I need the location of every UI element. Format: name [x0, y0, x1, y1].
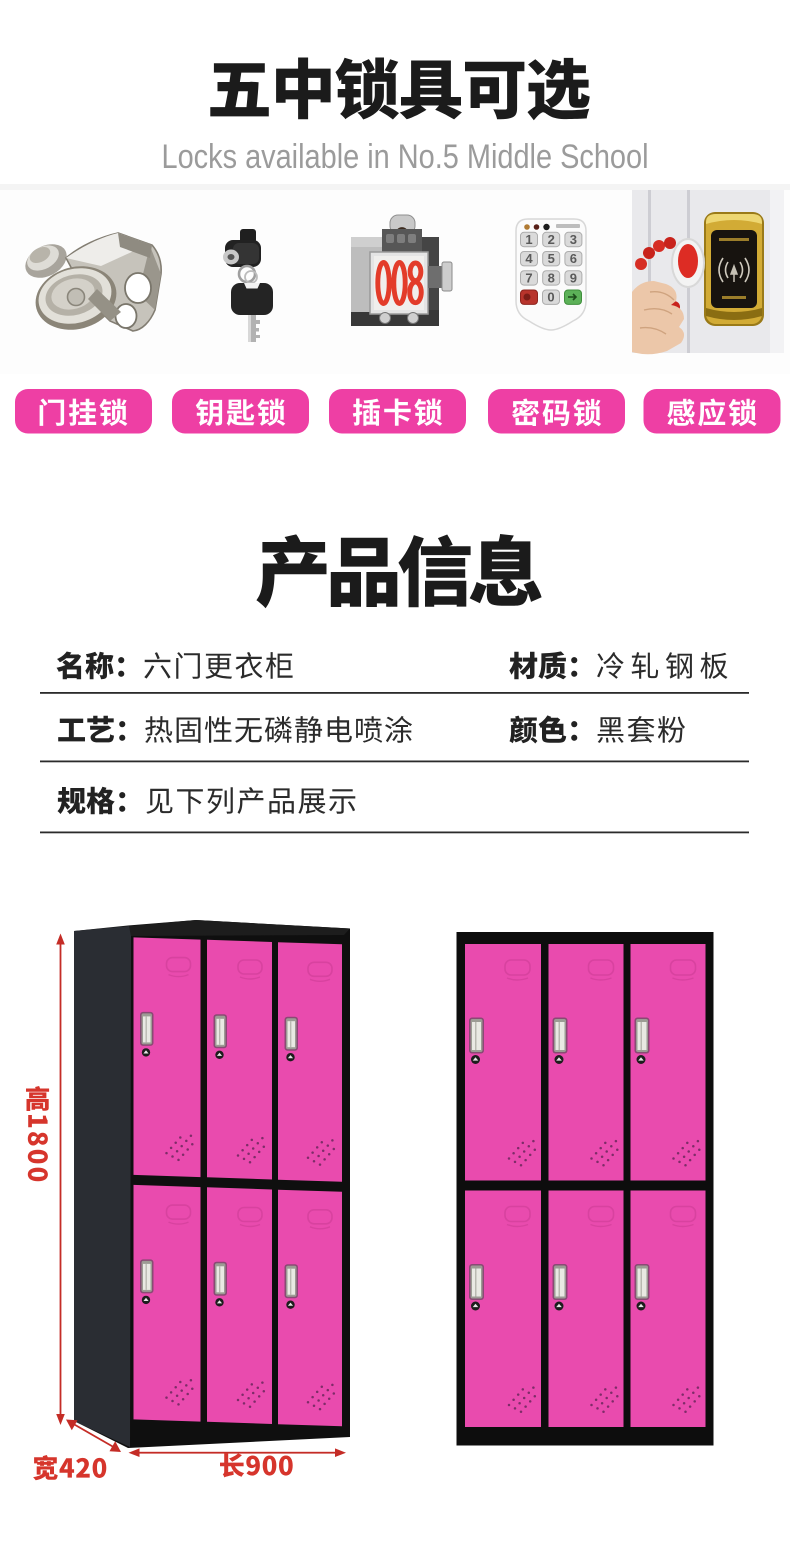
- svg-text:0: 0: [547, 290, 554, 305]
- svg-text:8: 8: [548, 270, 555, 285]
- svg-text:7: 7: [525, 270, 532, 285]
- svg-text:3: 3: [570, 232, 577, 247]
- svg-text:5: 5: [548, 251, 555, 266]
- svg-text:6: 6: [570, 251, 577, 266]
- svg-text:2: 2: [548, 232, 555, 247]
- svg-text:1: 1: [525, 232, 532, 247]
- svg-text:4: 4: [525, 251, 533, 266]
- svg-text:Locks available in No.5 Middle: Locks available in No.5 Middle School: [162, 138, 649, 176]
- svg-text:9: 9: [570, 270, 577, 285]
